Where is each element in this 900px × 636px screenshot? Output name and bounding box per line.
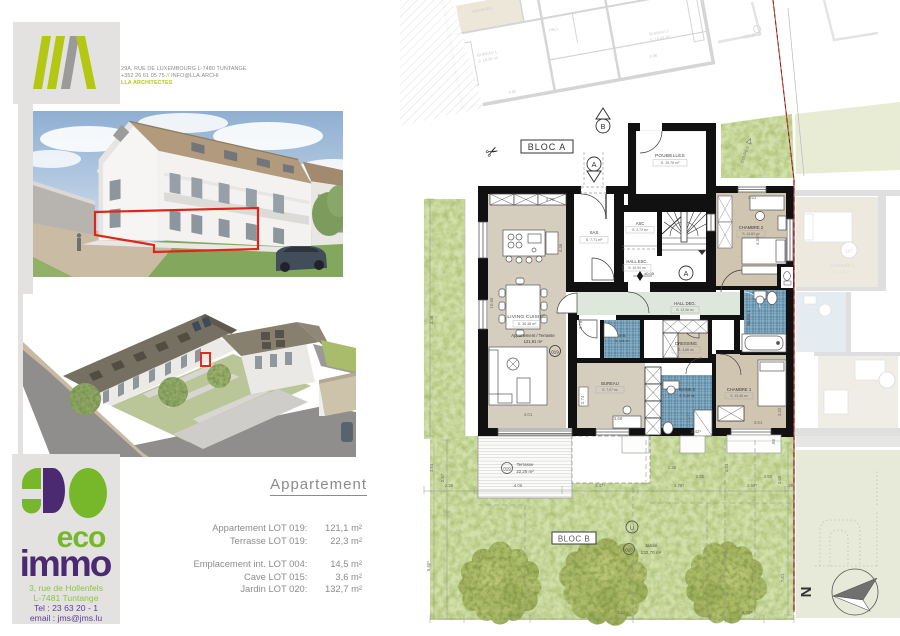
svg-text:BLOC A: BLOC A [528,142,567,152]
svg-text:2.42⁵: 2.42⁵ [686,413,691,424]
svg-text:3.75⁵: 3.75⁵ [674,483,685,488]
svg-text:L-7481 Tuntange: L-7481 Tuntange [34,593,99,603]
svg-text:S. 36,38 m²: S. 36,38 m² [518,322,537,326]
svg-text:S. 4,68 m²: S. 4,68 m² [678,348,695,352]
svg-text:ASC: ASC [636,221,645,226]
svg-text:3, rue de Hollenfels: 3, rue de Hollenfels [29,583,103,593]
svg-text:019: 019 [503,466,511,471]
svg-text:LIVING CUISINE: LIVING CUISINE [507,314,546,319]
svg-text:Jardin: Jardin [645,543,658,548]
svg-text:3.47⁵: 3.47⁵ [595,483,606,488]
svg-text:BUREAU: BUREAU [601,381,618,386]
svg-text:.39: .39 [787,483,794,488]
svg-text:3.70: 3.70 [546,197,555,202]
svg-text:2.42⁵: 2.42⁵ [691,429,702,434]
svg-text:020: 020 [625,547,633,552]
svg-text:S. 13,46 m²: S. 13,46 m² [730,394,748,398]
svg-text:CHAMBRE 1: CHAMBRE 1 [830,263,855,268]
svg-text:HALL ESC.: HALL ESC. [626,259,647,264]
svg-text:.86: .86 [771,438,776,445]
svg-text:3.32: 3.32 [777,407,782,416]
svg-text:N: N [798,587,815,598]
svg-text:4.22: 4.22 [617,610,626,615]
svg-text:S. 14,36 m²: S. 14,36 m² [833,270,851,274]
svg-text:A: A [684,271,689,278]
svg-text:2.50: 2.50 [764,474,773,479]
svg-text:S. 2,72 m²: S. 2,72 m² [632,228,649,232]
svg-text:5.60⁵: 5.60⁵ [426,561,431,572]
svg-text:107: 107 [845,249,853,254]
svg-text:3.51: 3.51 [754,420,763,425]
svg-text:7.61: 7.61 [780,573,785,582]
svg-text:019: 019 [551,349,559,354]
svg-text:±0.00: ±0.00 [644,271,655,276]
svg-text:3.69: 3.69 [614,416,623,421]
svg-text:immo: immo [20,543,112,584]
svg-text:S. 5,46 m²: S. 5,46 m² [679,394,696,398]
svg-text:BLOC B: BLOC B [558,535,590,544]
svg-text:U: U [630,526,634,532]
svg-text:S. 7,07 m²: S. 7,07 m² [602,388,619,392]
svg-text:3.78⁵: 3.78⁵ [578,319,583,330]
svg-text:132,70 m²: 132,70 m² [641,550,662,555]
svg-text:2.74: 2.74 [580,395,585,404]
svg-text:DEB.: DEB. [618,334,627,338]
svg-text:S. 12,06 m²: S. 12,06 m² [676,308,694,312]
svg-text:4.01: 4.01 [524,412,533,417]
svg-text:SAS: SAS [590,230,599,235]
svg-text:S. 1,96 m²: S. 1,96 m² [615,339,629,343]
svg-text:Terrasse: Terrasse [517,462,534,467]
svg-text:HALL DEG.: HALL DEG. [674,301,696,306]
svg-text:S. 10,76 m²: S. 10,76 m² [661,161,680,165]
svg-text:4.46: 4.46 [558,243,563,252]
svg-text:S. 7,71 m²: S. 7,71 m² [586,238,603,242]
svg-text:3.51: 3.51 [748,195,757,200]
svg-text:1.36: 1.36 [668,465,677,470]
svg-text:3.52⁵: 3.52⁵ [742,610,753,615]
svg-text:2.98⁵: 2.98⁵ [747,483,758,488]
svg-text:Appartement / Terrasse: Appartement / Terrasse [511,333,555,338]
svg-text:BAINS 2: BAINS 2 [679,387,696,392]
svg-text:2.60: 2.60 [777,475,782,484]
svg-text:121,81 m²: 121,81 m² [524,339,543,344]
svg-text:4.06: 4.06 [514,483,523,488]
svg-text:email : jms@jms.lu: email : jms@jms.lu [30,613,102,623]
svg-text:10.66: 10.66 [489,297,494,309]
svg-text:CHAMBRE 1: CHAMBRE 1 [727,387,752,392]
svg-text:3.38: 3.38 [429,315,434,324]
svg-text:22,25 m²: 22,25 m² [516,469,534,474]
svg-text:3.34: 3.34 [724,463,729,472]
svg-text:S. 10,94 m²: S. 10,94 m² [628,266,646,270]
svg-text:2.50: 2.50 [696,474,705,479]
svg-text:CHAMBRE 2: CHAMBRE 2 [739,225,764,230]
svg-text:2.57: 2.57 [440,473,445,482]
svg-text:Tel : 23 63 20 - 1: Tel : 23 63 20 - 1 [34,603,98,613]
svg-text:3.54: 3.54 [429,463,434,472]
svg-text:2.29: 2.29 [445,483,454,488]
svg-text:4.34⁵: 4.34⁵ [755,235,760,246]
svg-text:B: B [600,122,605,131]
svg-text:DRESSING: DRESSING [675,341,697,346]
svg-text:POUBELLES: POUBELLES [655,153,685,158]
svg-text:A: A [591,160,596,169]
svg-text:BAINS 1: BAINS 1 [746,310,751,326]
